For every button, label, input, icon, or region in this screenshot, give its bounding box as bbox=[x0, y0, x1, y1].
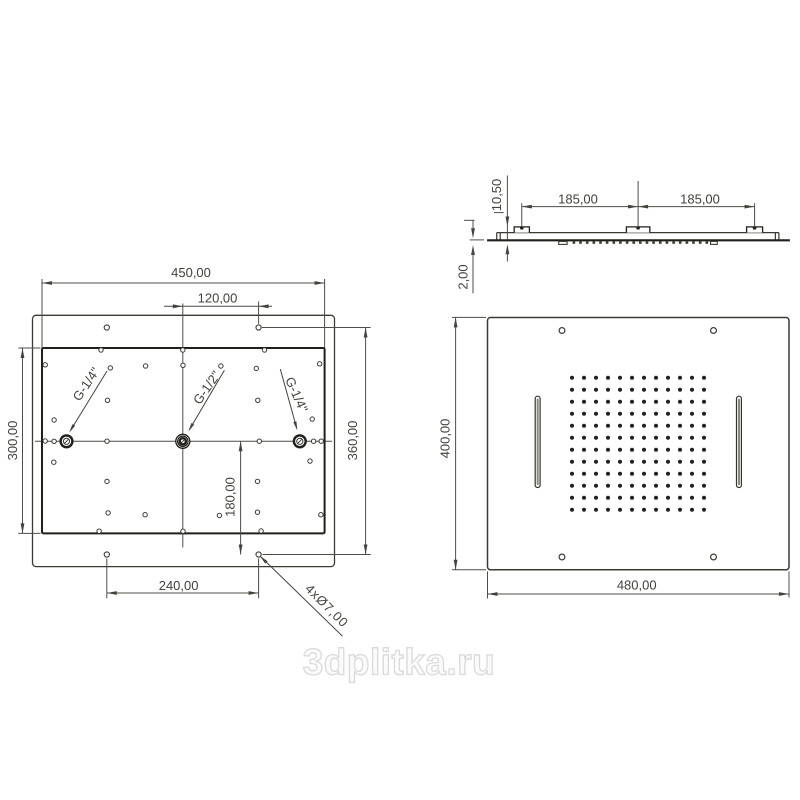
svg-text:3dplitka.ru: 3dplitka.ru bbox=[303, 642, 496, 683]
svg-text:2,00: 2,00 bbox=[456, 264, 471, 289]
svg-text:185,00: 185,00 bbox=[558, 192, 598, 207]
svg-text:240,00: 240,00 bbox=[159, 578, 199, 593]
svg-text:360,00: 360,00 bbox=[345, 421, 360, 461]
svg-text:300,00: 300,00 bbox=[5, 421, 20, 461]
svg-text:450,00: 450,00 bbox=[171, 265, 211, 280]
svg-text:400,00: 400,00 bbox=[437, 419, 452, 459]
svg-text:10,50: 10,50 bbox=[489, 179, 504, 212]
svg-text:180,00: 180,00 bbox=[223, 477, 238, 517]
svg-text:120,00: 120,00 bbox=[198, 291, 238, 306]
svg-text:185,00: 185,00 bbox=[680, 192, 720, 207]
svg-text:480,00: 480,00 bbox=[617, 578, 657, 593]
